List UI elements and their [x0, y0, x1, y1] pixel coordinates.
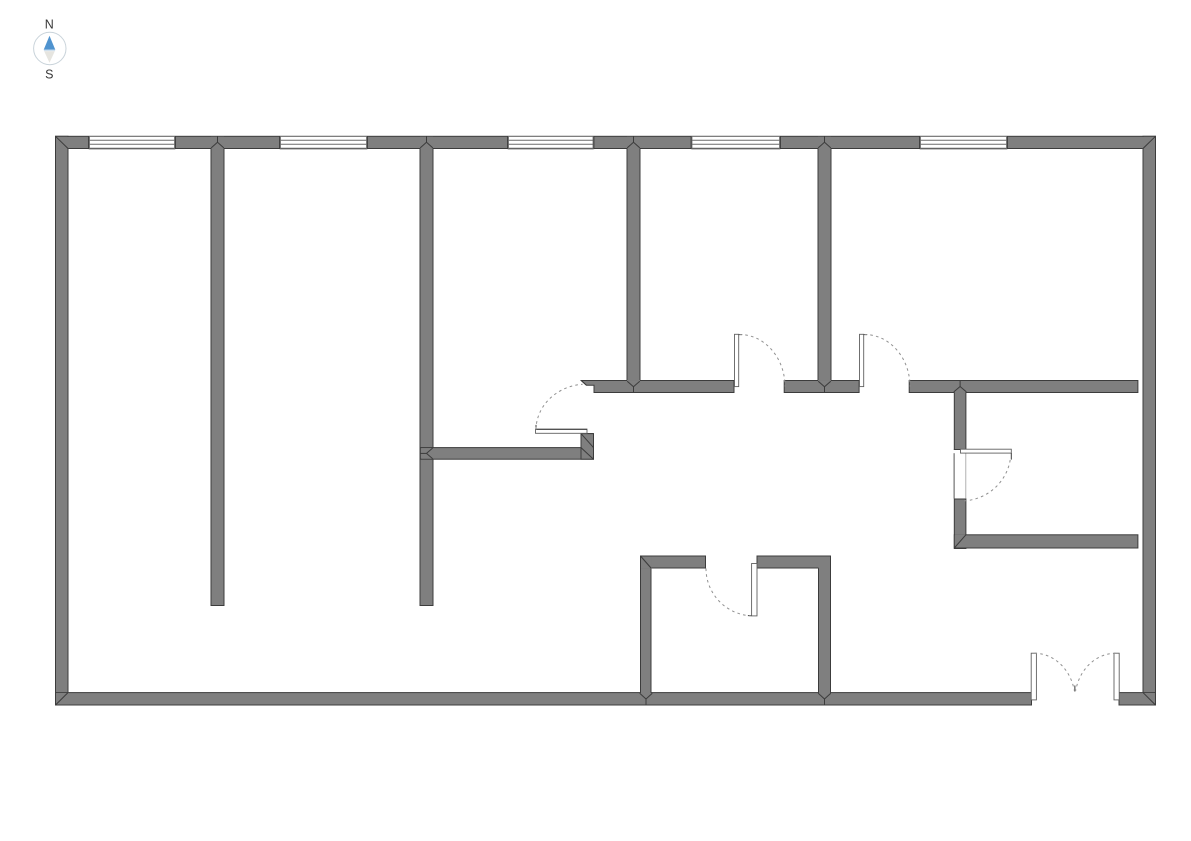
svg-text:S: S: [45, 67, 53, 81]
svg-text:N: N: [45, 17, 54, 31]
